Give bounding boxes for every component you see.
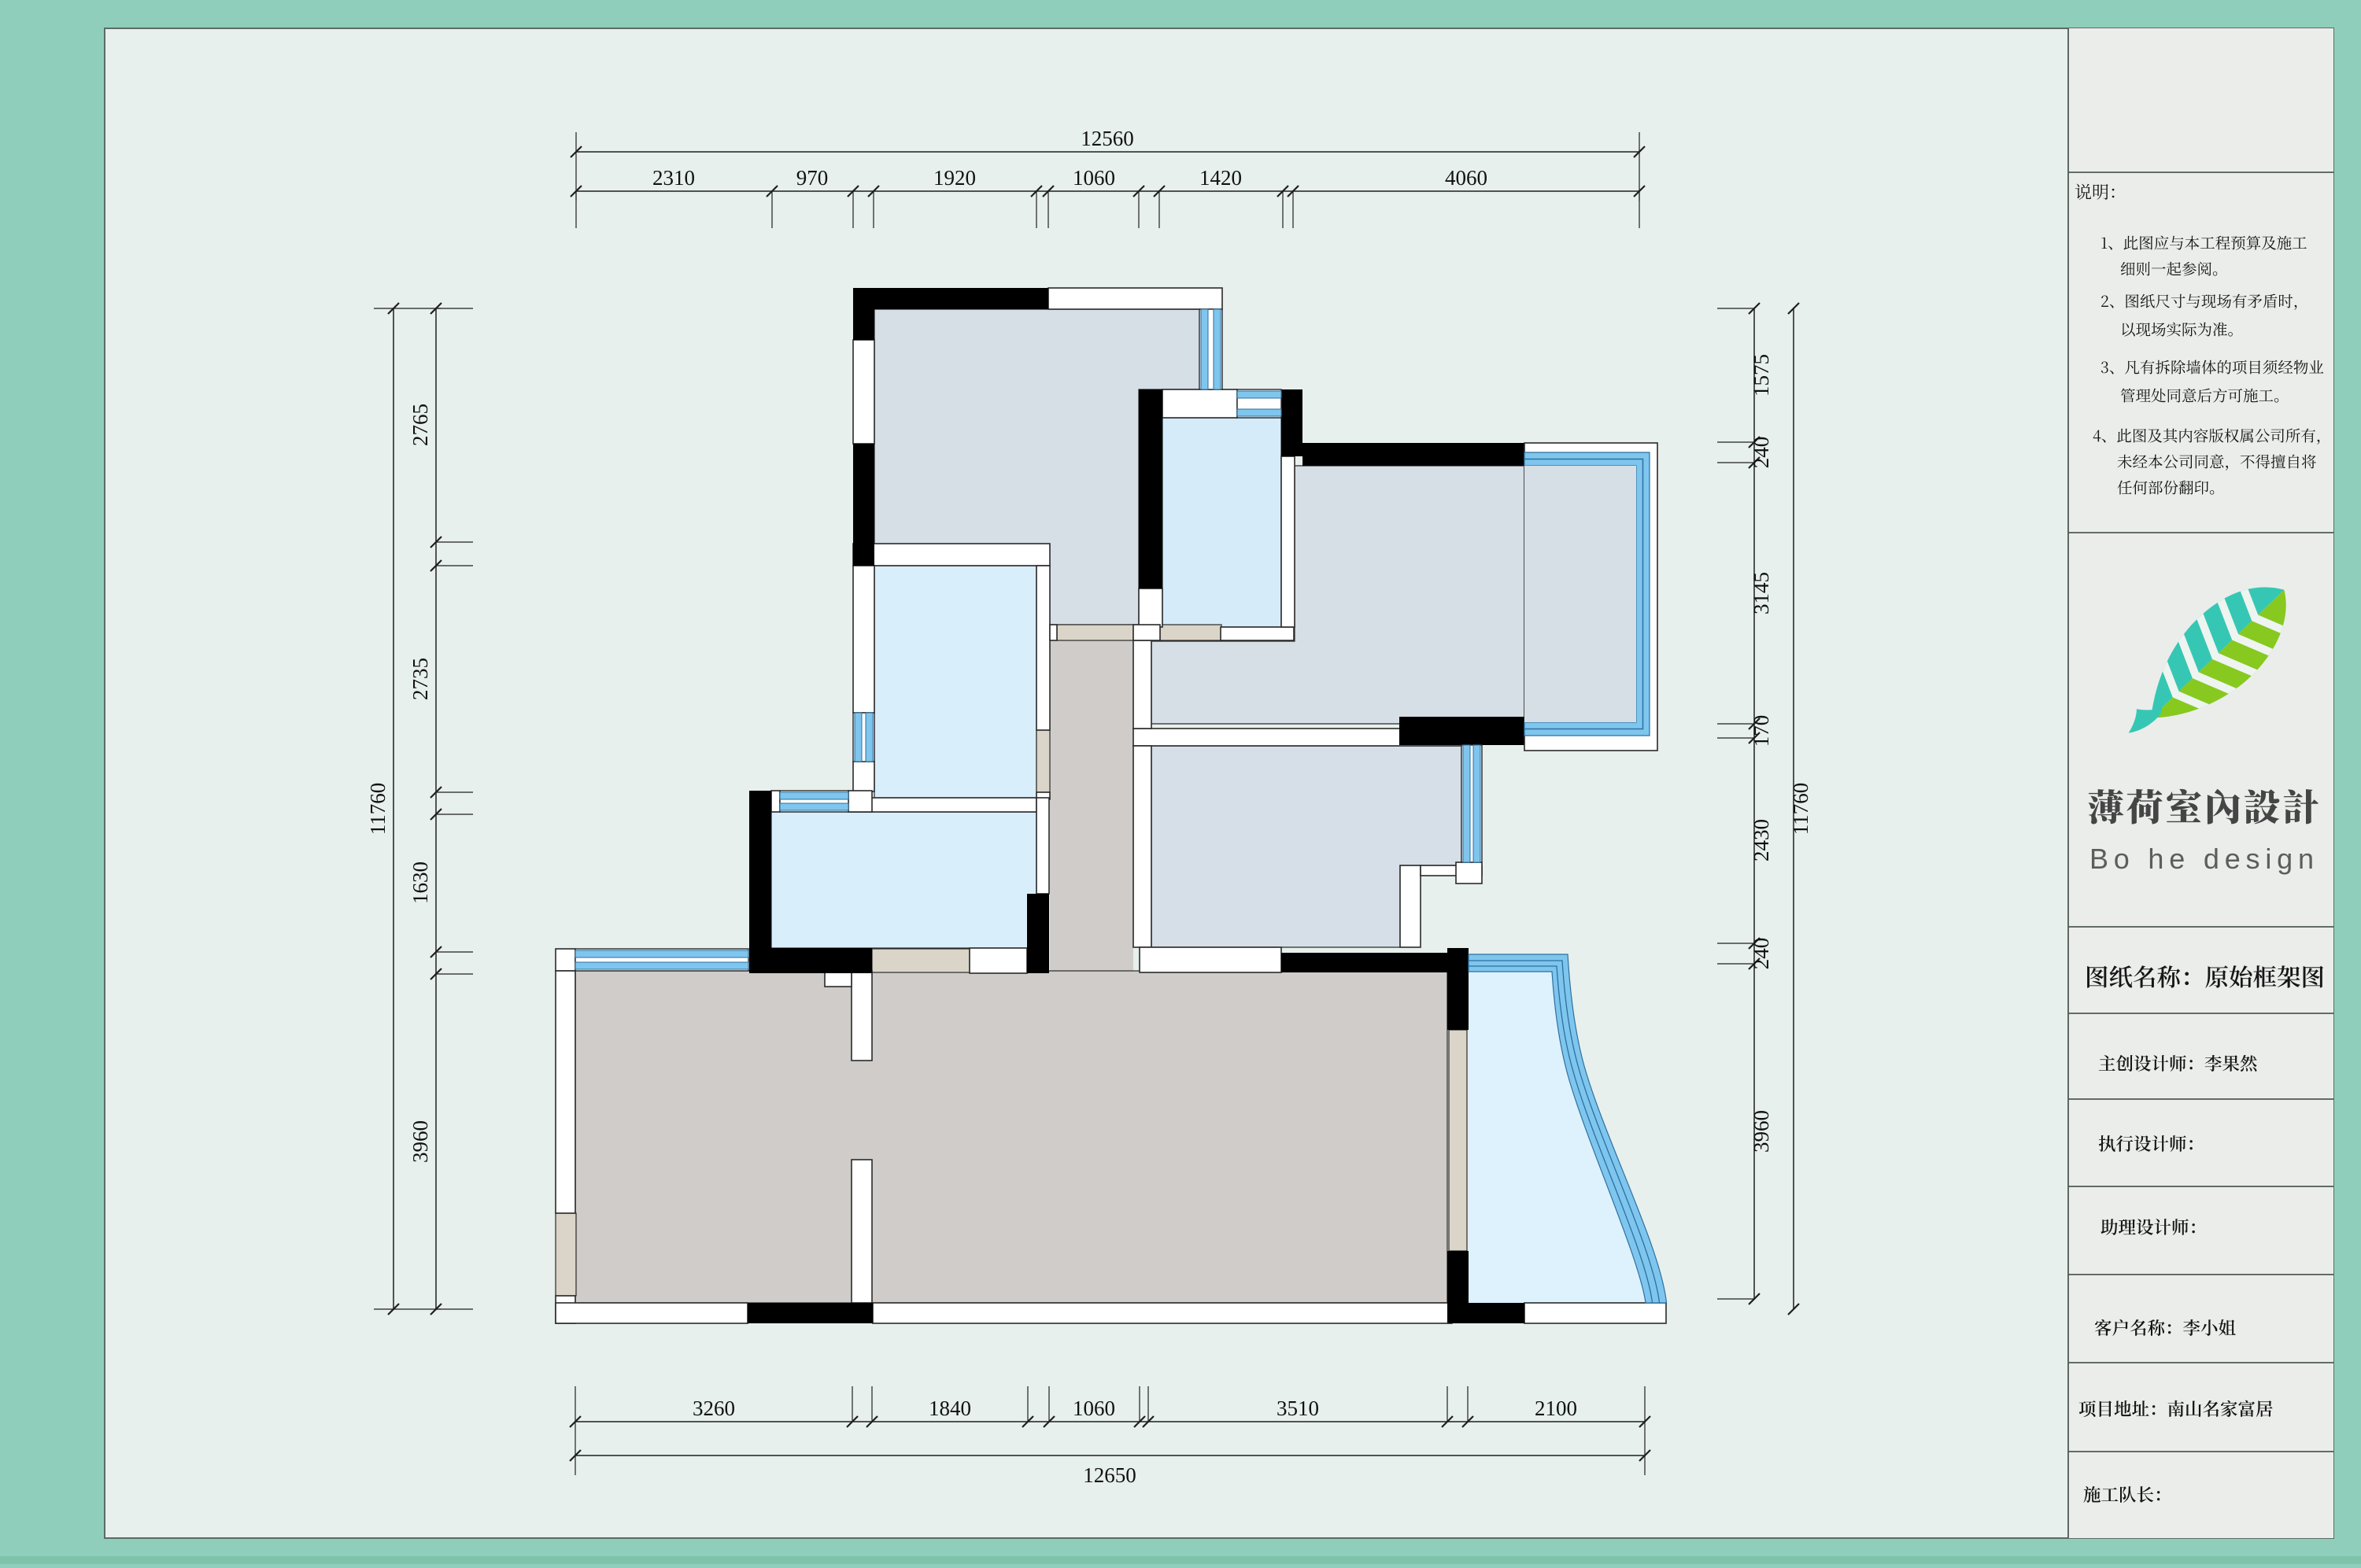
svg-text:3260: 3260 bbox=[693, 1396, 735, 1420]
svg-text:2430: 2430 bbox=[1750, 819, 1773, 861]
svg-text:1575: 1575 bbox=[1750, 354, 1773, 397]
svg-text:2735: 2735 bbox=[408, 658, 432, 700]
svg-text:1060: 1060 bbox=[1073, 166, 1115, 190]
svg-text:1920: 1920 bbox=[933, 166, 976, 190]
svg-text:1420: 1420 bbox=[1199, 166, 1242, 190]
svg-text:12650: 12650 bbox=[1083, 1463, 1136, 1487]
svg-text:2310: 2310 bbox=[652, 166, 695, 190]
svg-text:4060: 4060 bbox=[1445, 166, 1487, 190]
svg-text:3960: 3960 bbox=[408, 1120, 432, 1163]
svg-text:Bo he design: Bo he design bbox=[2089, 843, 2319, 875]
svg-text:3960: 3960 bbox=[1750, 1110, 1773, 1153]
svg-text:3145: 3145 bbox=[1750, 572, 1773, 614]
svg-text:970: 970 bbox=[796, 166, 829, 190]
svg-text:2100: 2100 bbox=[1535, 1396, 1577, 1420]
svg-text:170: 170 bbox=[1750, 715, 1773, 747]
svg-text:11760: 11760 bbox=[366, 783, 390, 836]
svg-text:11760: 11760 bbox=[1789, 783, 1812, 836]
svg-text:3510: 3510 bbox=[1277, 1396, 1319, 1420]
svg-text:2765: 2765 bbox=[408, 404, 432, 446]
svg-text:1840: 1840 bbox=[929, 1396, 971, 1420]
svg-text:240: 240 bbox=[1750, 938, 1773, 970]
svg-text:1060: 1060 bbox=[1073, 1396, 1115, 1420]
svg-text:240: 240 bbox=[1750, 437, 1773, 469]
svg-text:1630: 1630 bbox=[408, 861, 432, 904]
svg-text:12560: 12560 bbox=[1081, 127, 1134, 150]
